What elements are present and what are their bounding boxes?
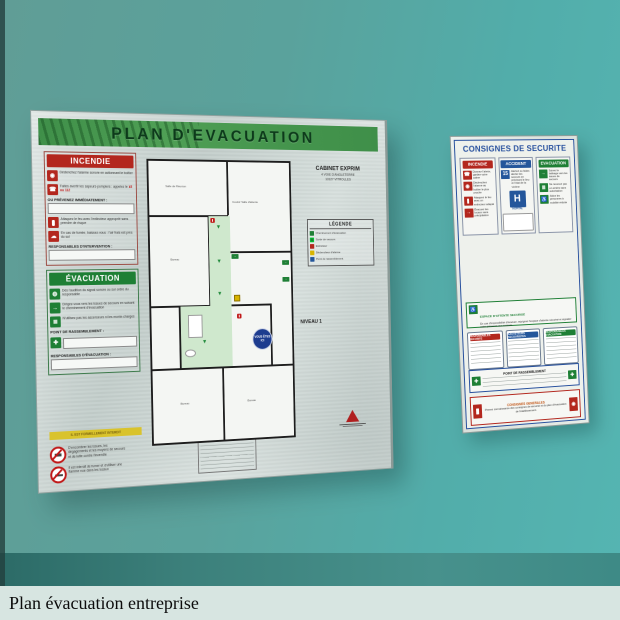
- plan-exit-sign: →: [282, 277, 289, 281]
- evacuation-row-signal: ◍ Dès l'audition du signal sonore ou sur…: [49, 287, 136, 300]
- sign-row-text: Alertez ou faites alerter les secours en…: [511, 169, 532, 188]
- plan-wall: [226, 162, 228, 215]
- accident-note-box: [503, 213, 534, 232]
- evacuation-row-elevator-text: N'utilisez pas les ascenseurs ni les mon…: [63, 314, 135, 320]
- legend-item-text: Sortie de secours: [316, 238, 336, 241]
- floor-plan: Salle de Réunion Couloir Salle d'attente…: [146, 159, 295, 446]
- write-lines: [546, 337, 576, 360]
- board-title: PLAN D'EVACUATION: [111, 123, 315, 147]
- evacuation-pill: EVACUATION: [538, 159, 568, 167]
- legend-item: Cheminement d'évacuation: [310, 231, 372, 236]
- sign-frame: CONSIGNES DE SECURITE INCENDIE ☎Donnez l…: [454, 139, 586, 429]
- evacuation-row-exit: → Dirigez-vous vers les issues de secour…: [50, 301, 137, 314]
- you-are-here-text: VOUS ÊTES ICI: [253, 335, 271, 343]
- sign-row: 15Alertez ou faites alerter les secours …: [501, 169, 532, 189]
- legend-box: LÉGENDE Cheminement d'évacuation Sortie …: [307, 219, 374, 266]
- room-label-bureau-1: Bureau: [170, 258, 179, 262]
- refuge-area-icon: ♿: [469, 305, 478, 314]
- sign-row: ◉Déclenchez l'alarme au boîtier le plus …: [463, 181, 494, 194]
- sign-row: Attaquez le feu avec un extincteur adapt…: [464, 196, 495, 206]
- sign-row-text: Aidez les personnes à mobilité réduite: [550, 195, 570, 205]
- legend-extinguisher-icon: [310, 244, 314, 249]
- plan-exit-sign: →: [231, 254, 238, 258]
- evacuation-header: ÉVACUATION: [49, 272, 136, 286]
- assembly-point-icon: ✚: [50, 337, 61, 348]
- evacuate-icon: →: [464, 208, 473, 217]
- incendie-row-extinguisher-text: Attaquez le feu avec l'extincteur approp…: [61, 217, 135, 225]
- write-lines: [508, 339, 539, 362]
- notify-write-box: [48, 203, 135, 214]
- you-are-here-badge: VOUS ÊTES ICI: [252, 328, 272, 350]
- legend-item: Déclencheur d'alarme: [310, 250, 372, 255]
- evacuation-row-signal-text: Dès l'audition du signal sonore ou sur o…: [62, 287, 136, 297]
- incendie-header: INCENDIE: [47, 154, 134, 168]
- intervention-write-box: [49, 249, 136, 261]
- legend-exit-icon: [310, 238, 314, 243]
- logo-triangle-icon: [346, 410, 359, 423]
- sign-row: ≣Ne revenez pas en arrière sans autorisa…: [539, 183, 569, 193]
- evacuation-arrow-icon: ▼: [216, 259, 221, 265]
- evacuation-room-accueil: [179, 305, 233, 368]
- plan-extinguisher-icon: [210, 218, 215, 223]
- sign-title: CONSIGNES DE SECURITE: [455, 144, 574, 154]
- stairs-icon: ≣: [539, 184, 548, 193]
- evacuation-plan-board: PLAN D'EVACUATION INCENDIE ◉ Déclenchez …: [30, 110, 394, 494]
- room-label-bureau-3: Bureau: [247, 398, 256, 402]
- plan-extinguisher-icon: [237, 314, 241, 319]
- notify-label: OU PRÉVENEZ IMMÉDIATEMENT :: [48, 198, 135, 202]
- sign-row-text: Attaquez le feu avec un extincteur adapt…: [474, 196, 495, 206]
- column-accident: ACCIDENT 15Alertez ou faites alerter les…: [498, 157, 536, 234]
- sign-row-text: Ne revenez pas en arrière sans autorisat…: [549, 183, 569, 193]
- board-title-band: PLAN D'EVACUATION: [38, 118, 378, 152]
- assembly-point-icon: ✚: [472, 376, 481, 386]
- alarm-call-point-icon: ◉: [569, 397, 578, 411]
- prohibition-blocking-text: D'encombrer les issues, les dégagements …: [68, 443, 125, 459]
- incendie-section: INCENDIE ◉ Déclenchez l'alarme sonore en…: [44, 151, 139, 266]
- sauveteurs-label: SAUVETEURS SECOURISTES: [508, 331, 538, 339]
- assembly-point-icon: ✚: [568, 370, 577, 379]
- wheelchair-icon: ♿: [540, 195, 549, 204]
- crawl-low-icon: ☁: [48, 231, 59, 242]
- plan-desk: [188, 315, 203, 338]
- info-text-lines: [200, 439, 254, 471]
- room-label-couloir: Couloir Salle d'attente: [232, 200, 258, 204]
- sign-row: ☎Donnez l'alerte, gardez votre calme: [462, 170, 493, 180]
- legend-assembly-icon: [310, 257, 314, 262]
- alarm-button-icon: ◉: [47, 170, 58, 181]
- sign-row: ♿Aidez les personnes à mobilité réduite: [540, 195, 570, 205]
- plan-wall: [232, 304, 271, 306]
- plan-exit-sign: →: [282, 260, 289, 264]
- sign-row-text: Suivez le balisage vers les issues de se…: [549, 169, 569, 182]
- evac-responsables-write-box: [51, 356, 138, 370]
- no-smoking-icon: [50, 466, 67, 484]
- plan-wall: [228, 251, 291, 253]
- column-evacuation: EVACUATION →Suivez le balisage vers les …: [536, 156, 573, 233]
- espace-attente-band: ♿ ESPACE D'ATTENTE SECURISE En cas d'imp…: [466, 297, 577, 328]
- incendie-row-call: ☎ Faites avertir les sapeurs-pompiers : …: [47, 184, 134, 196]
- forbidden-banner: IL EST FORMELLEMENT INTERDIT: [49, 427, 141, 440]
- incendie-pill: INCENDIE: [462, 160, 493, 168]
- plan-alarm-icon: [234, 295, 240, 302]
- exit-running-icon: →: [50, 302, 61, 313]
- hospital-sign: H: [509, 190, 526, 207]
- incendie-row-alarm-text: Déclenchez l'alarme sonore en actionnant…: [60, 170, 133, 175]
- responsables-securite-box: RESPONSABLES SECURITE: [467, 330, 504, 370]
- level-label: NIVEAU 1: [300, 319, 322, 325]
- incendie-row-extinguisher: Attaquez le feu avec l'extincteur approp…: [48, 217, 135, 228]
- evacuation-row-exit-text: Dirigez-vous vers les issues de secours …: [62, 301, 136, 311]
- accident-pill: ACCIDENT: [500, 159, 531, 167]
- incendie-row-alarm: ◉ Déclenchez l'alarme sonore en actionna…: [47, 170, 134, 182]
- responsables-evacuation-box: RESPONSABLES EVACUATION: [543, 326, 579, 365]
- responsables-securite-label: RESPONSABLES SECURITE: [469, 333, 500, 341]
- evacuation-arrow-icon: ▼: [202, 339, 207, 345]
- alarm-sound-icon: ◍: [49, 289, 60, 300]
- incendie-row-smoke-text: En cas de fumée, baissez-vous : l'air fr…: [61, 231, 135, 240]
- plan-wall: [222, 366, 225, 439]
- responsables-evacuation-label: RESPONSABLES EVACUATION: [545, 329, 575, 337]
- sign-row: →Suivez le balisage vers les issues de s…: [539, 169, 569, 182]
- legend-alarm-icon: [310, 251, 314, 256]
- exit-running-icon: →: [539, 169, 548, 178]
- legend-path-icon: [310, 231, 314, 236]
- legend-item-text: Extincteur: [316, 245, 327, 248]
- evacuation-section: ÉVACUATION ◍ Dès l'audition du signal so…: [46, 269, 140, 376]
- extinguisher-icon: [48, 217, 59, 228]
- image-left-edge: [0, 0, 5, 586]
- legend-item: Sortie de secours: [310, 237, 372, 242]
- legend-item-text: Cheminement d'évacuation: [316, 232, 346, 235]
- site-name: CABINET EXPRIM: [297, 165, 377, 173]
- no-blocking-icon: [50, 446, 67, 464]
- extinguisher-icon: [473, 404, 482, 419]
- room-label-bureau-2: Bureau: [181, 401, 190, 405]
- sign-row-text: Évacuez les locaux sans précipitation: [474, 208, 495, 218]
- phone-icon: ☎: [462, 170, 471, 179]
- assembly-write-box: [63, 336, 137, 349]
- espace-attente-header: ESPACE D'ATTENTE SECURISE: [480, 312, 525, 318]
- consignes-securite-sign: CONSIGNES DE SECURITE INCENDIE ☎Donnez l…: [450, 135, 590, 434]
- column-incendie: INCENDIE ☎Donnez l'alerte, gardez votre …: [459, 157, 498, 235]
- intervention-label: RESPONSABLES D'INTERVENTION :: [48, 244, 135, 249]
- consignes-generales-band: CONSIGNES GENERALES Prenez connaissance …: [470, 389, 581, 426]
- incendie-row-call-text: Faites avertir les sapeurs-pompiers : ap…: [60, 184, 134, 193]
- logo-text-line: [343, 425, 363, 427]
- prohibition-smoking-text: Il est interdit de fumer et d'utiliser u…: [69, 462, 126, 474]
- sauveteurs-box: SAUVETEURS SECOURISTES: [505, 328, 541, 367]
- stairs-icon: ≣: [50, 316, 61, 327]
- evacuation-arrow-icon: ▼: [217, 291, 222, 297]
- hospital-label: HOPITAL: [503, 207, 533, 211]
- caption-text: Plan évacuation entreprise: [9, 593, 199, 614]
- phone-icon: ☎: [47, 184, 58, 195]
- sign-row-text: Donnez l'alerte, gardez votre calme: [473, 170, 494, 180]
- legend-item: Extincteur: [310, 244, 372, 249]
- legend-item-text: Point de rassemblement: [316, 258, 343, 261]
- legend-header: LÉGENDE: [310, 222, 372, 229]
- legend-item: Point de rassemblement: [310, 256, 372, 261]
- evacuation-arrow-icon: ▼: [216, 225, 221, 231]
- assembly-label: POINT DE RASSEMBLEMENT :: [50, 328, 137, 334]
- photo-scene: PLAN D'EVACUATION INCENDIE ◉ Déclenchez …: [0, 0, 620, 620]
- board-left-column: INCENDIE ◉ Déclenchez l'alarme sonore en…: [44, 151, 141, 379]
- sign-row: →Évacuez les locaux sans précipitation: [464, 208, 495, 218]
- alarm-button-icon: ◉: [463, 182, 472, 191]
- room-label-salle-reunion: Salle de Réunion: [165, 184, 186, 188]
- legend-item-text: Déclencheur d'alarme: [316, 251, 340, 254]
- assembly-row: ✚: [50, 335, 137, 352]
- incendie-row-smoke: ☁ En cas de fumée, baissez-vous : l'air …: [48, 231, 135, 242]
- extinguisher-icon: [464, 197, 473, 206]
- site-address-block: CABINET EXPRIM 4 VOIE D'ANGLETERRE 13127…: [297, 165, 377, 182]
- company-logo: [336, 409, 369, 428]
- sign-columns: INCENDIE ☎Donnez l'alerte, gardez votre …: [459, 156, 573, 235]
- site-address-line2: 13127 VITROLLES: [298, 177, 378, 182]
- wall-base-band: [0, 553, 620, 586]
- sign-row-text: Déclenchez l'alarme au boîtier le plus p…: [473, 181, 494, 194]
- evacuation-row-elevator: ≣ N'utilisez pas les ascenseurs ni les m…: [50, 314, 137, 327]
- caption-bar: Plan évacuation entreprise: [0, 586, 620, 620]
- write-lines: [470, 341, 502, 365]
- samu-15-icon: 15: [501, 170, 510, 179]
